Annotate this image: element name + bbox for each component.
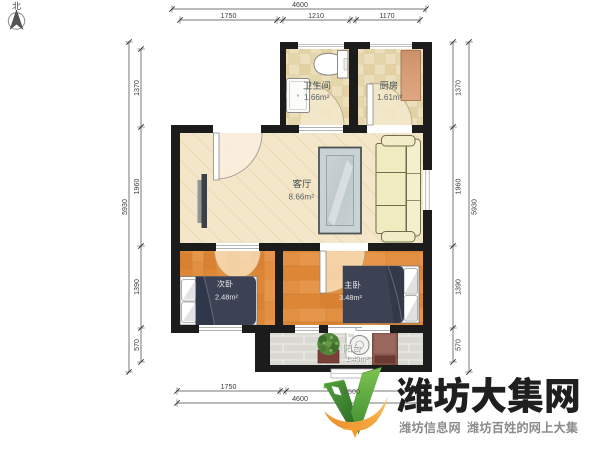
svg-text:1960: 1960 — [133, 179, 141, 195]
svg-text:4600: 4600 — [292, 1, 308, 9]
svg-text:570: 570 — [133, 339, 141, 351]
svg-text:3.48m²: 3.48m² — [339, 293, 363, 302]
svg-text:2500: 2500 — [344, 387, 360, 396]
svg-text:1390: 1390 — [133, 279, 141, 295]
svg-text:1.66m²: 1.66m² — [304, 93, 330, 102]
svg-text:570: 570 — [455, 339, 463, 351]
svg-text:1390: 1390 — [455, 279, 463, 295]
svg-text:1370: 1370 — [455, 80, 463, 96]
svg-text:1750: 1750 — [221, 12, 237, 20]
svg-text:1960: 1960 — [455, 179, 463, 195]
svg-text:1.43m²: 1.43m² — [346, 354, 370, 363]
svg-text:2.48m²: 2.48m² — [215, 293, 239, 302]
svg-text:1750: 1750 — [221, 383, 237, 391]
svg-text:8.66m²: 8.66m² — [289, 193, 315, 202]
svg-text:1210: 1210 — [308, 12, 324, 20]
svg-text:1.61m²: 1.61m² — [377, 93, 403, 102]
svg-text:1370: 1370 — [133, 80, 141, 96]
svg-text:5930: 5930 — [121, 199, 129, 215]
svg-text:5930: 5930 — [471, 199, 479, 215]
svg-text:4600: 4600 — [292, 395, 308, 403]
svg-text:1170: 1170 — [379, 12, 394, 20]
